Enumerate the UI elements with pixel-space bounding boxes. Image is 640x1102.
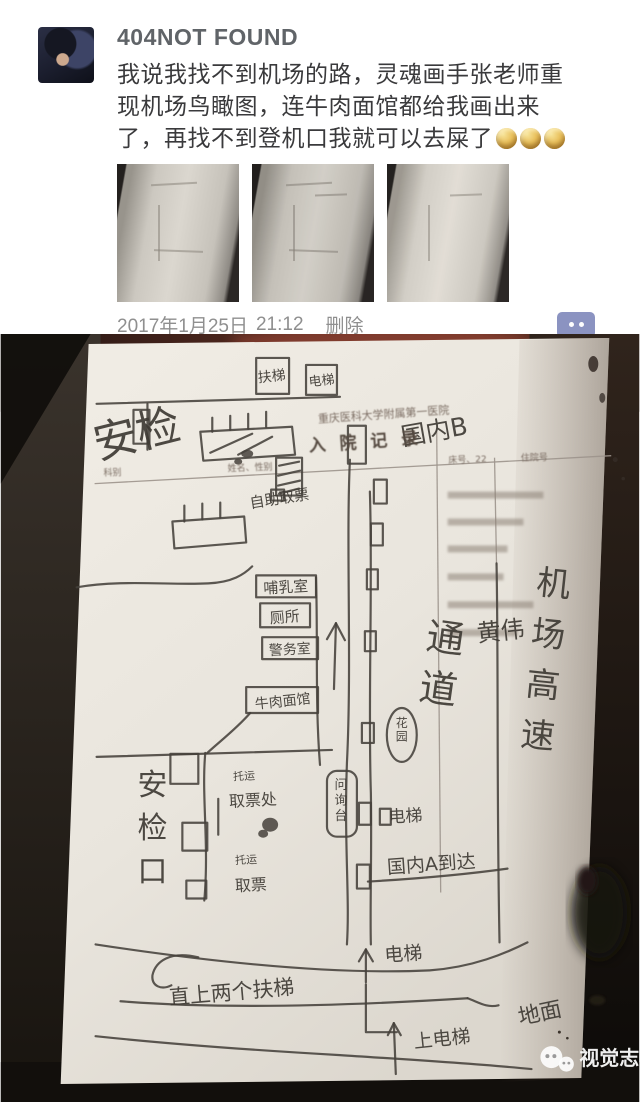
comment-dot	[579, 322, 584, 327]
watermark-brand: 视觉志	[579, 1046, 639, 1070]
map-handwritten-label: 黄伟	[475, 615, 526, 648]
map-handwritten-label: 扶梯	[257, 367, 286, 386]
map-handwritten-label: 安检口	[137, 768, 167, 890]
map-handwritten-label: 托运	[233, 768, 256, 783]
printed-form-label: 住院号	[521, 451, 548, 464]
sketch-line	[158, 205, 160, 260]
map-handwritten-label: 取票	[234, 875, 267, 896]
sketch-line	[289, 249, 338, 253]
map-handwritten-label: 托运	[235, 852, 258, 867]
comment-dot	[569, 322, 574, 327]
post-content: 404NOT FOUND 我说我找不到机场的路，灵魂画手张老师重现机场鸟瞰图，连…	[117, 24, 617, 338]
gold-moon-face-emoji	[544, 128, 565, 149]
gold-moon-face-emoji	[520, 128, 541, 149]
map-thumbnail-2[interactable]	[252, 164, 374, 302]
map-handwritten-label: 电梯	[388, 805, 423, 827]
sketch-line	[154, 249, 203, 253]
post-time: 21:12	[256, 314, 304, 336]
avatar[interactable]	[38, 27, 94, 83]
post-header: 404NOT FOUND 我说我找不到机场的路，灵魂画手张老师重现机场鸟瞰图，连…	[0, 0, 640, 334]
map-handwritten-label: 花园	[396, 715, 408, 744]
sketch-line	[293, 205, 295, 260]
map-thumbnail-3[interactable]	[387, 164, 509, 302]
map-handwritten-label: 警务室	[268, 640, 311, 659]
post-body-text: 我说我找不到机场的路，灵魂画手张老师重现机场鸟瞰图，连牛肉面馆都给我画出来了，再…	[117, 58, 585, 154]
map-handwritten-label: 厕所	[269, 607, 300, 628]
sketch-line	[450, 194, 482, 197]
printed-form-label: 科别	[103, 466, 121, 479]
username[interactable]: 404NOT FOUND	[117, 24, 617, 51]
sketch-line	[428, 205, 430, 260]
map-handwritten-label: 取票处	[229, 790, 278, 811]
gold-moon-face-emoji	[496, 128, 517, 149]
map-thumbnail-1[interactable]	[117, 164, 239, 302]
wechat-moments-post-screenshot: 404NOT FOUND 我说我找不到机场的路，灵魂画手张老师重现机场鸟瞰图，连…	[0, 0, 640, 1102]
map-handwritten-label: 哺乳室	[263, 577, 309, 597]
hand-drawn-airport-map: 扶梯电梯安检国内B自助取票哺乳室厕所警务室牛肉面馆通道黄伟机场高速花园问询台电梯…	[0, 334, 640, 1102]
emoji-row	[493, 125, 565, 151]
wechat-bubble-icon-small	[559, 1057, 574, 1072]
thumbnail-row	[117, 164, 617, 302]
map-handwritten-label: 电梯	[384, 942, 423, 967]
sketch-line	[315, 194, 347, 197]
sketch-line	[286, 182, 332, 186]
map-handwritten-label: 电梯	[308, 373, 335, 391]
map-handwritten-label: 问询台	[334, 778, 347, 824]
map-photo[interactable]: 扶梯电梯安检国内B自助取票哺乳室厕所警务室牛肉面馆通道黄伟机场高速花园问询台电梯…	[0, 334, 640, 1102]
sketch-line	[151, 182, 197, 186]
